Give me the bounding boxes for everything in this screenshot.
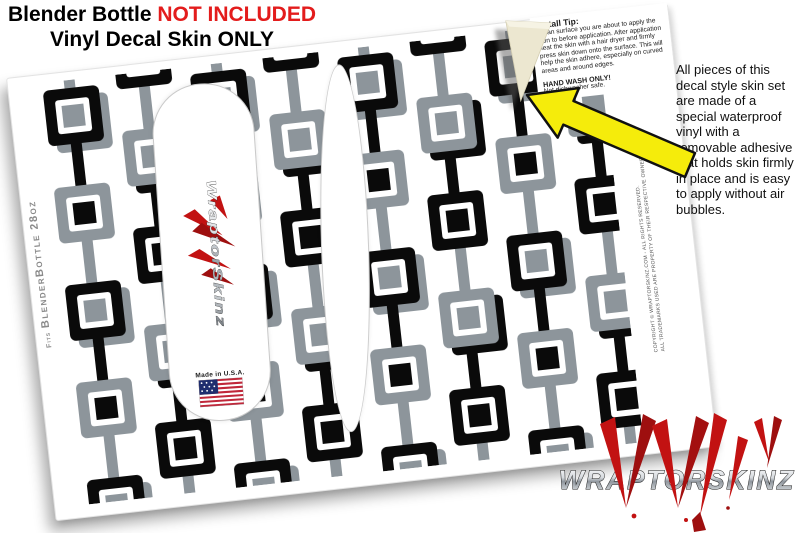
page-title: Blender Bottle NOT INCLUDED Vinyl Decal …: [2, 2, 322, 52]
product-image: Blender Bottle NOT INCLUDED Vinyl Decal …: [0, 0, 799, 533]
usa-flag-icon: [198, 377, 244, 407]
callout-arrow-icon: [510, 80, 710, 190]
title-line: Blender Bottle NOT INCLUDED: [2, 2, 322, 27]
vertical-brand-text: WraptorSkinz: [204, 180, 229, 329]
claw-marks-icon: [588, 408, 799, 533]
subtitle-line: Vinyl Decal Skin ONLY: [2, 27, 322, 52]
vertical-brand-logo: WraptorSkinz: [178, 168, 245, 331]
title-prefix: Blender Bottle: [8, 3, 157, 26]
fits-prefix: Fits: [45, 331, 54, 348]
title-highlight: NOT INCLUDED: [157, 3, 316, 26]
